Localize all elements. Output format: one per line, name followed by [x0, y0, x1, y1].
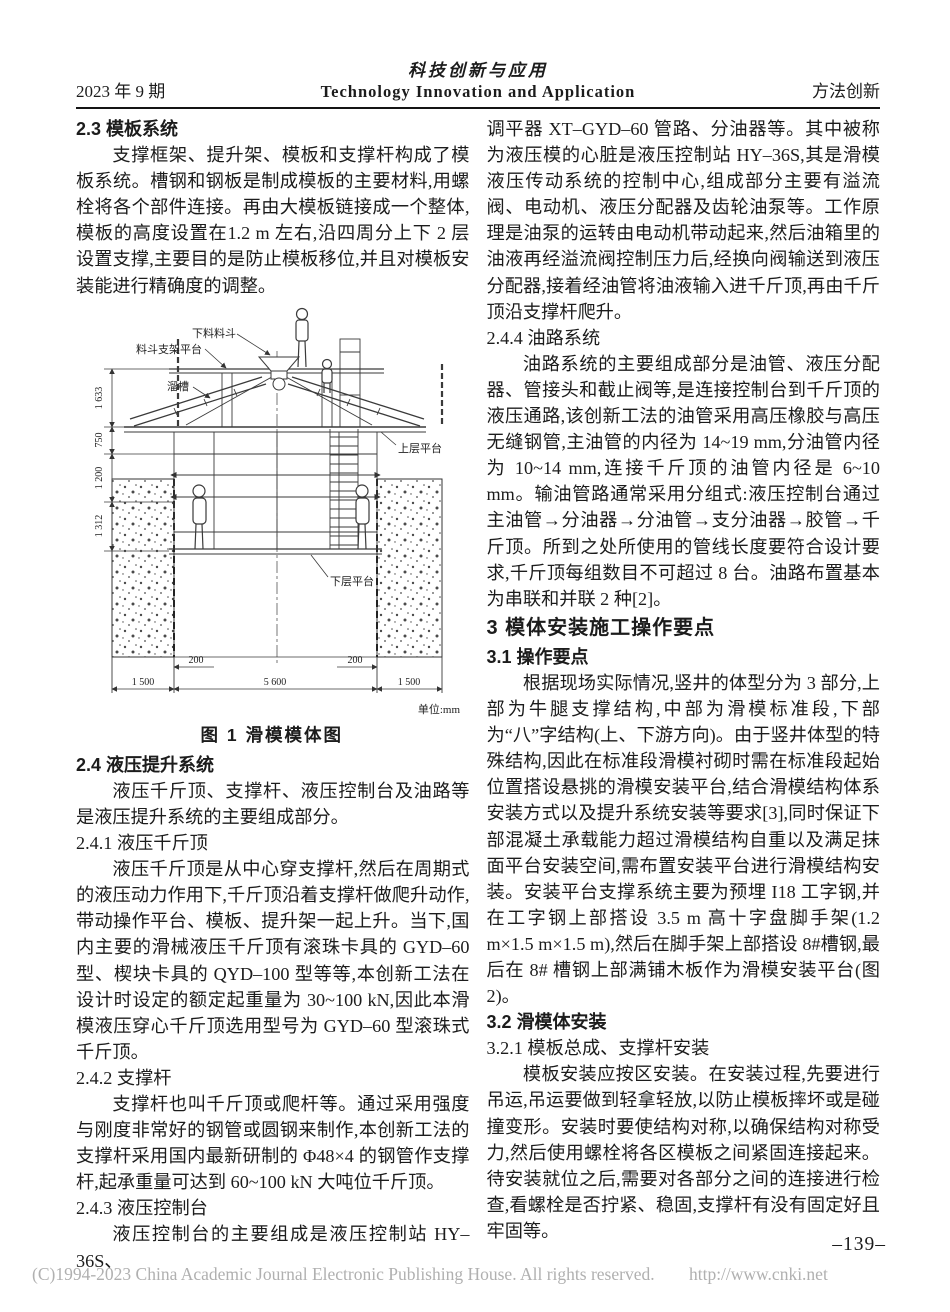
figure-label-upper-platform: 上层平台 [398, 441, 442, 455]
paragraph: 油路系统的主要组成部分是油管、液压分配器、管接头和截止阀等,是连接控制台到千斤顶… [487, 351, 881, 612]
chapter-heading: 3 模体安装施工操作要点 [487, 615, 881, 641]
cnki-url: http://www.cnki.net [689, 1264, 828, 1284]
dimension-label: 5 600 [264, 677, 287, 688]
figure-label-lower-platform: 下层平台 [330, 574, 374, 588]
dimension-label: 200 [189, 655, 204, 666]
copyright-notice: (C)1994-2023 China Academic Journal Elec… [32, 1264, 892, 1285]
journal-title-english: Technology Innovation and Application [226, 82, 730, 102]
section-heading: 3.1 操作要点 [487, 644, 881, 670]
page-header: 2023 年 9 期 科技创新与应用 Technology Innovation… [0, 0, 950, 109]
slipform-diagram: 1 633 750 1 200 1 312 200 200 1 500 [74, 307, 464, 719]
section-heading: 2.3 模板系统 [76, 116, 470, 142]
column-name-label: 方法创新 [730, 82, 880, 102]
dimension-label: 200 [348, 655, 363, 666]
dimension-label: 750 [94, 432, 105, 447]
paragraph: 支撑框架、提升架、模板和支撑杆构成了模板系统。槽钢和钢板是制成模板的主要材料,用… [76, 142, 470, 299]
paragraph: 支撑杆也叫千斤顶或爬杆等。通过采用强度与刚度非常好的钢管或圆钢来制作,本创新工法… [76, 1091, 470, 1195]
figure-unit-note: 单位:mm [418, 702, 461, 716]
figure-label-hopper-platform: 料斗支架平台 [136, 342, 202, 356]
figure-label-chute: 溜槽 [167, 379, 189, 393]
dimension-label: 1 500 [132, 677, 155, 688]
page-number: –139– [832, 1234, 886, 1256]
subsection-heading: 2.4.2 支撑杆 [76, 1065, 470, 1091]
right-column: 调平器 XT–GYD–60 管路、分油器等。其中被称为液压模的心脏是液压控制站 … [487, 116, 881, 1274]
paragraph: 模板安装应按区安装。在安装过程,先要进行吊运,吊运要做到轻拿轻放,以防止模板摔坏… [487, 1061, 881, 1244]
dimension-label: 1 633 [94, 386, 105, 409]
journal-title-chinese: 科技创新与应用 [226, 56, 730, 81]
dimension-label: 1 500 [398, 677, 421, 688]
subsection-heading: 3.2.1 模板总成、支撑杆安装 [487, 1035, 881, 1061]
section-heading: 2.4 液压提升系统 [76, 752, 470, 778]
issue-label: 2023 年 9 期 [76, 82, 226, 102]
figure-label-hopper: 下料料斗 [192, 326, 236, 340]
subsection-heading: 2.4.1 液压千斤顶 [76, 830, 470, 856]
paragraph: 液压千斤顶、支撑杆、液压控制台及油路等是液压提升系统的主要组成部分。 [76, 778, 470, 830]
paragraph: 液压千斤顶是从中心穿支撑杆,然后在周期式的液压动力作用下,千斤顶沿着支撑杆做爬升… [76, 856, 470, 1065]
article-body: 2.3 模板系统 支撑框架、提升架、模板和支撑杆构成了模板系统。槽钢和钢板是制成… [0, 109, 950, 1274]
subsection-heading: 2.4.3 液压控制台 [76, 1195, 470, 1221]
figure-caption: 图 1 滑模模体图 [74, 722, 470, 748]
copyright-text: (C)1994-2023 China Academic Journal Elec… [32, 1264, 655, 1284]
paragraph: 调平器 XT–GYD–60 管路、分油器等。其中被称为液压模的心脏是液压控制站 … [487, 116, 881, 325]
dimension-label: 1 312 [94, 514, 105, 537]
left-column: 2.3 模板系统 支撑框架、提升架、模板和支撑杆构成了模板系统。槽钢和钢板是制成… [76, 116, 470, 1274]
section-heading: 3.2 滑模体安装 [487, 1009, 881, 1035]
figure-1: 1 633 750 1 200 1 312 200 200 1 500 [74, 307, 470, 748]
worker-figures [193, 308, 369, 549]
subsection-heading: 2.4.4 油路系统 [487, 325, 881, 351]
paragraph: 根据现场实际情况,竖井的体型分为 3 部分,上部为牛腿支撑结构,中部为滑模标准段… [487, 670, 881, 1009]
dimension-label: 1 200 [94, 466, 105, 489]
